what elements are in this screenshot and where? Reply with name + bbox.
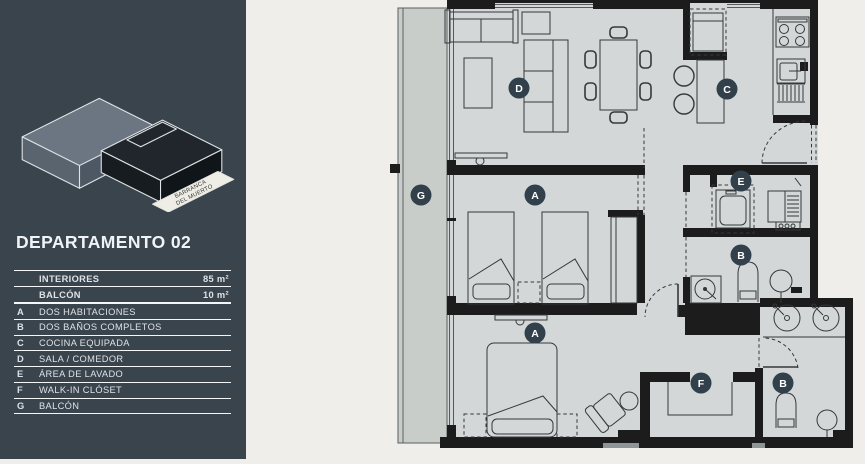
unit-spec-table: INTERIORES85 m²BALCÓN10 m² ADOS HABITACI… xyxy=(14,270,231,414)
floorplan: DCGAEBAFB xyxy=(388,0,865,459)
floorplan-svg: DCGAEBAFB xyxy=(388,0,865,459)
legend-key: G xyxy=(14,401,39,411)
room-marker-f: F xyxy=(691,373,712,394)
legend-row-b: BDOS BAÑOS COMPLETOS xyxy=(14,319,231,335)
area-label: BALCÓN xyxy=(39,290,81,300)
area-value: 85 m² xyxy=(203,274,231,284)
room-marker-b: B xyxy=(731,245,752,266)
svg-text:D: D xyxy=(515,83,523,95)
svg-text:B: B xyxy=(737,250,745,262)
room-marker-a: A xyxy=(525,323,546,344)
room-marker-d: D xyxy=(509,78,530,99)
unit-title: DEPARTAMENTO 02 xyxy=(16,232,236,253)
area-rows: INTERIORES85 m²BALCÓN10 m² xyxy=(14,270,231,303)
svg-text:E: E xyxy=(737,176,744,188)
area-row: INTERIORES85 m² xyxy=(14,270,231,286)
room-marker-e: E xyxy=(731,171,752,192)
area-label: INTERIORES xyxy=(39,274,99,284)
page: { "sidebar": { "title": "DEPARTAMENTO 02… xyxy=(0,0,865,459)
brand-logo: BARRANCA DEL MUERTO xyxy=(8,46,236,212)
legend-rows: ADOS HABITACIONESBDOS BAÑOS COMPLETOSCCO… xyxy=(14,303,231,414)
legend-row-f: FWALK-IN CLÓSET xyxy=(14,382,231,398)
legend-row-d: DSALA / COMEDOR xyxy=(14,350,231,366)
svg-text:A: A xyxy=(531,190,539,202)
legend-key: F xyxy=(14,385,39,395)
svg-text:F: F xyxy=(698,378,705,390)
legend-label: DOS BAÑOS COMPLETOS xyxy=(39,322,162,332)
legend-key: E xyxy=(14,369,39,379)
legend-row-a: ADOS HABITACIONES xyxy=(14,303,231,319)
room-marker-c: C xyxy=(717,79,738,100)
legend-label: BALCÓN xyxy=(39,401,79,411)
svg-text:B: B xyxy=(779,378,787,390)
legend-label: DOS HABITACIONES xyxy=(39,307,136,317)
legend-row-c: CCOCINA EQUIPADA xyxy=(14,335,231,351)
legend-label: COCINA EQUIPADA xyxy=(39,338,130,348)
area-row: BALCÓN10 m² xyxy=(14,286,231,303)
room-marker-a: A xyxy=(525,185,546,206)
svg-text:G: G xyxy=(417,190,425,202)
legend-label: ÁREA DE LAVADO xyxy=(39,369,123,379)
legend-row-e: EÁREA DE LAVADO xyxy=(14,366,231,382)
legend-row-g: GBALCÓN xyxy=(14,398,231,415)
isometric-building-icon: BARRANCA DEL MUERTO xyxy=(8,46,236,212)
area-value: 10 m² xyxy=(203,290,231,300)
legend-key: C xyxy=(14,338,39,348)
room-marker-g: G xyxy=(411,185,432,206)
legend-key: B xyxy=(14,322,39,332)
legend-label: SALA / COMEDOR xyxy=(39,354,123,364)
sidebar: BARRANCA DEL MUERTO DEPARTAMENTO 02 INTE… xyxy=(0,0,246,459)
svg-text:A: A xyxy=(531,328,539,340)
svg-text:C: C xyxy=(723,84,731,96)
legend-label: WALK-IN CLÓSET xyxy=(39,385,122,395)
legend-key: D xyxy=(14,354,39,364)
room-marker-b: B xyxy=(773,373,794,394)
balcony-floor xyxy=(398,8,447,443)
legend-key: A xyxy=(14,307,39,317)
